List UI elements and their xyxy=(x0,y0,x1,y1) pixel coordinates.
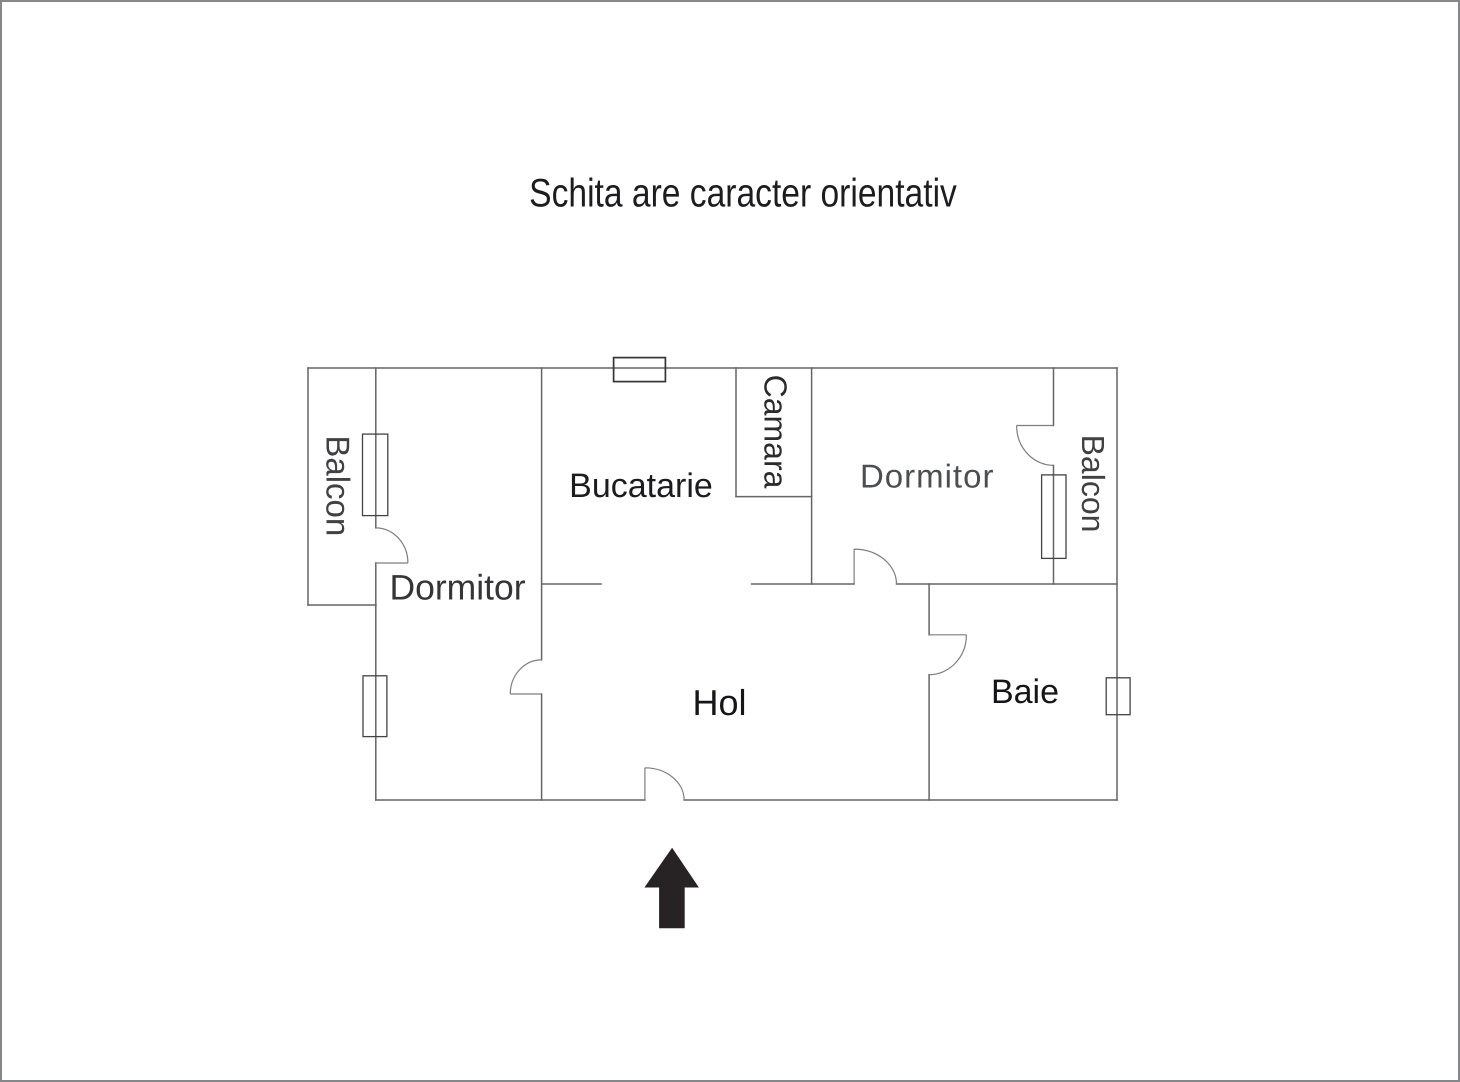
svg-text:Dormitor: Dormitor xyxy=(860,458,995,495)
svg-text:Balcon: Balcon xyxy=(1075,435,1111,533)
svg-text:Hol: Hol xyxy=(692,682,746,723)
svg-text:Camara: Camara xyxy=(758,375,794,489)
svg-text:Baie: Baie xyxy=(991,673,1059,711)
svg-text:Schita are caracter orientativ: Schita are caracter orientativ xyxy=(529,171,957,215)
svg-text:Bucatarie: Bucatarie xyxy=(569,467,713,505)
svg-text:Dormitor: Dormitor xyxy=(389,567,525,607)
svg-text:Balcon: Balcon xyxy=(320,435,357,536)
